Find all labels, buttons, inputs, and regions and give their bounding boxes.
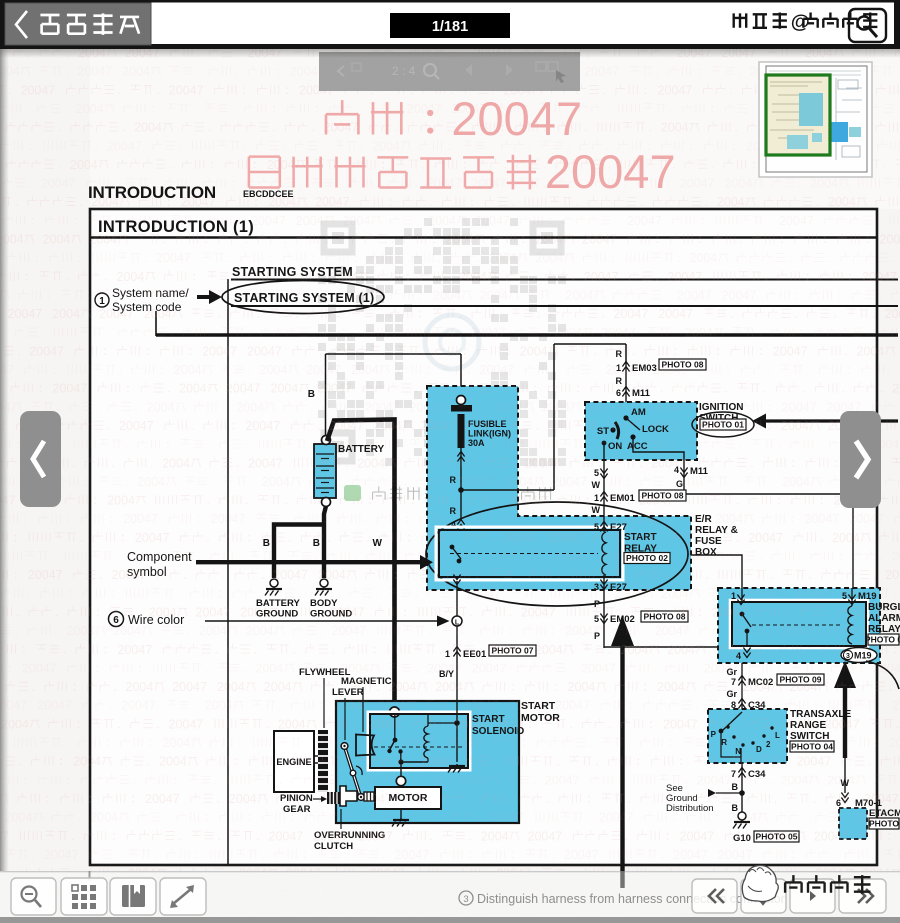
svg-text:2004: 2004 xyxy=(657,680,685,694)
svg-text:20047: 20047 xyxy=(805,512,840,526)
svg-text:2004: 2004 xyxy=(163,736,191,750)
svg-text:20047: 20047 xyxy=(564,848,599,862)
svg-text:20047: 20047 xyxy=(248,456,283,470)
svg-text:2004: 2004 xyxy=(542,400,570,414)
svg-text:20047: 20047 xyxy=(680,177,715,191)
svg-text:2004: 2004 xyxy=(767,829,795,843)
svg-text:20047: 20047 xyxy=(367,717,402,731)
svg-text:MAGNETIC: MAGNETIC xyxy=(341,676,392,687)
svg-text:2004: 2004 xyxy=(873,661,900,675)
svg-text:W: W xyxy=(373,538,383,549)
svg-text:G10: G10 xyxy=(733,833,751,844)
svg-text:2004: 2004 xyxy=(606,363,634,377)
svg-text:20047: 20047 xyxy=(22,661,57,675)
svg-text:20047: 20047 xyxy=(78,65,113,79)
svg-text:2004: 2004 xyxy=(43,233,71,247)
svg-text:2004: 2004 xyxy=(205,699,233,713)
svg-text:20047: 20047 xyxy=(269,829,304,843)
svg-text:LEVER: LEVER xyxy=(332,687,364,698)
svg-text:N: N xyxy=(735,747,741,756)
svg-text:2004: 2004 xyxy=(236,400,264,414)
svg-text:20047: 20047 xyxy=(782,400,817,414)
svg-text:20047: 20047 xyxy=(545,773,580,787)
svg-text:2004: 2004 xyxy=(459,270,487,284)
svg-text:20047: 20047 xyxy=(451,92,582,145)
svg-text:2004: 2004 xyxy=(509,699,537,713)
svg-text:5: 5 xyxy=(594,614,599,624)
svg-text:2004: 2004 xyxy=(661,587,689,601)
svg-text:2004: 2004 xyxy=(264,680,292,694)
svg-text:20047: 20047 xyxy=(475,214,510,228)
svg-text:20047: 20047 xyxy=(123,512,158,526)
svg-text:20047: 20047 xyxy=(322,438,357,452)
svg-text:MOTOR: MOTOR xyxy=(521,712,560,724)
svg-text:2004: 2004 xyxy=(374,419,402,433)
svg-text:20047: 20047 xyxy=(346,288,381,302)
svg-text:20047: 20047 xyxy=(773,344,808,358)
svg-text:20047: 20047 xyxy=(330,606,365,620)
svg-text:P: P xyxy=(711,730,717,739)
svg-text:2004: 2004 xyxy=(159,755,187,769)
svg-text:2004: 2004 xyxy=(446,233,474,247)
svg-text:20047: 20047 xyxy=(525,456,560,470)
svg-text:20047: 20047 xyxy=(673,848,708,862)
svg-text:20047: 20047 xyxy=(315,195,350,209)
svg-text:B: B xyxy=(263,538,270,549)
svg-text:20047: 20047 xyxy=(663,717,698,731)
svg-text:1: 1 xyxy=(731,591,736,601)
svg-text:20047: 20047 xyxy=(599,811,634,825)
svg-text:2004: 2004 xyxy=(827,773,855,787)
svg-text:2004: 2004 xyxy=(495,400,523,414)
svg-text:2004: 2004 xyxy=(743,680,771,694)
svg-text:7: 7 xyxy=(731,677,736,687)
svg-text:2004: 2004 xyxy=(880,233,900,247)
svg-text:20047: 20047 xyxy=(407,102,442,116)
svg-text:2004: 2004 xyxy=(260,363,288,377)
svg-text:2004: 2004 xyxy=(520,344,548,358)
svg-text:W: W xyxy=(592,480,601,490)
svg-text:20047: 20047 xyxy=(41,177,76,191)
svg-text:20047: 20047 xyxy=(358,829,393,843)
svg-text:20047: 20047 xyxy=(472,661,507,675)
svg-text:20047: 20047 xyxy=(825,717,860,731)
svg-text:20047: 20047 xyxy=(181,195,216,209)
svg-text:2004: 2004 xyxy=(782,475,810,489)
svg-text:EM01: EM01 xyxy=(610,493,636,504)
svg-text:7: 7 xyxy=(731,769,736,779)
svg-text:2004: 2004 xyxy=(535,233,563,247)
svg-text:2004: 2004 xyxy=(651,456,679,470)
svg-text:20047: 20047 xyxy=(169,83,204,97)
svg-text:20047: 20047 xyxy=(655,624,690,638)
svg-text:20047: 20047 xyxy=(480,363,515,377)
svg-text:R: R xyxy=(450,475,457,485)
svg-text:B: B xyxy=(732,782,739,792)
svg-text:20047: 20047 xyxy=(365,400,400,414)
svg-text:2004: 2004 xyxy=(480,288,508,302)
svg-text:20047: 20047 xyxy=(333,699,368,713)
svg-text:20047: 20047 xyxy=(169,717,204,731)
svg-text:20047: 20047 xyxy=(490,811,525,825)
svg-text:20047: 20047 xyxy=(797,755,832,769)
svg-text:1: 1 xyxy=(99,296,105,307)
svg-text:START: START xyxy=(624,532,657,543)
svg-text:20047: 20047 xyxy=(555,550,590,564)
svg-text:G: G xyxy=(676,479,683,489)
svg-text:2004: 2004 xyxy=(690,251,718,265)
svg-text:2004: 2004 xyxy=(653,400,681,414)
svg-text:20047: 20047 xyxy=(528,829,563,843)
svg-text:2004: 2004 xyxy=(271,382,299,396)
svg-text:LINK(IGN): LINK(IGN) xyxy=(468,429,511,439)
svg-text:D: D xyxy=(756,745,762,754)
svg-text:20047: 20047 xyxy=(324,121,359,135)
svg-text:3: 3 xyxy=(846,653,850,660)
svg-text:20047: 20047 xyxy=(697,773,732,787)
svg-text:E27: E27 xyxy=(610,522,627,533)
svg-text:B: B xyxy=(308,389,315,400)
svg-text:2004: 2004 xyxy=(256,661,284,675)
svg-text:20047: 20047 xyxy=(306,363,341,377)
svg-text:20047: 20047 xyxy=(112,568,147,582)
svg-text:20047: 20047 xyxy=(29,344,64,358)
svg-text:20047: 20047 xyxy=(172,680,207,694)
svg-text:2004: 2004 xyxy=(137,475,165,489)
svg-text:2004: 2004 xyxy=(89,233,117,247)
svg-text:L: L xyxy=(455,620,460,627)
svg-text:20047: 20047 xyxy=(584,65,619,79)
svg-text:2004: 2004 xyxy=(278,717,306,731)
svg-text:2004: 2004 xyxy=(296,214,324,228)
svg-text:20047: 20047 xyxy=(464,699,499,713)
svg-text:20047: 20047 xyxy=(455,717,490,731)
svg-text:20047: 20047 xyxy=(466,587,501,601)
svg-text:2004: 2004 xyxy=(583,512,611,526)
svg-text:20047: 20047 xyxy=(642,438,677,452)
svg-text:2004: 2004 xyxy=(885,568,900,582)
svg-text:20047: 20047 xyxy=(21,83,56,97)
svg-text:3: 3 xyxy=(463,894,468,905)
svg-text:PHOTO 08: PHOTO 08 xyxy=(644,612,686,622)
svg-text:20047: 20047 xyxy=(712,606,747,620)
svg-text:2004: 2004 xyxy=(854,811,882,825)
svg-text:30A: 30A xyxy=(468,438,485,448)
svg-text:Component: Component xyxy=(127,550,192,564)
svg-text:2004: 2004 xyxy=(481,829,509,843)
svg-text:20047: 20047 xyxy=(135,531,170,545)
svg-text:20047: 20047 xyxy=(471,326,506,340)
svg-text:2004: 2004 xyxy=(147,400,175,414)
svg-text:20047: 20047 xyxy=(118,643,153,657)
svg-text:2004: 2004 xyxy=(76,102,104,116)
svg-text:ON: ON xyxy=(608,441,622,452)
svg-text:20047: 20047 xyxy=(226,382,261,396)
svg-text:1: 1 xyxy=(445,649,450,659)
svg-text:2004: 2004 xyxy=(318,568,346,582)
svg-text:20047: 20047 xyxy=(8,307,43,321)
svg-text:2004: 2004 xyxy=(885,307,900,321)
svg-text:20047: 20047 xyxy=(107,139,142,153)
svg-text:2004: 2004 xyxy=(262,475,290,489)
svg-text:20047: 20047 xyxy=(555,699,590,713)
svg-text:P: P xyxy=(594,631,600,641)
svg-text:20047: 20047 xyxy=(503,531,538,545)
svg-text:2004: 2004 xyxy=(113,624,141,638)
svg-text:SWITCH: SWITCH xyxy=(790,731,829,742)
svg-text:PINION: PINION xyxy=(280,793,313,804)
svg-text:20047: 20047 xyxy=(273,568,308,582)
svg-text:2004: 2004 xyxy=(433,288,461,302)
svg-text:Distinguish harness from harne: Distinguish harness from harness connect… xyxy=(477,892,785,906)
svg-text:2004: 2004 xyxy=(73,755,101,769)
svg-text:2004: 2004 xyxy=(240,606,268,620)
svg-text:5: 5 xyxy=(594,468,599,478)
svg-text:2004: 2004 xyxy=(715,512,743,526)
svg-text:2004: 2004 xyxy=(134,121,162,135)
svg-text:20047: 20047 xyxy=(639,494,674,508)
svg-text:@: @ xyxy=(791,11,810,33)
svg-text:20047: 20047 xyxy=(680,829,715,843)
svg-text:2004: 2004 xyxy=(489,251,517,265)
svg-text:2004: 2004 xyxy=(389,680,417,694)
svg-text:2004: 2004 xyxy=(428,214,456,228)
svg-text:1: 1 xyxy=(594,493,599,503)
svg-text:2004: 2004 xyxy=(447,736,475,750)
svg-text:6: 6 xyxy=(616,388,621,398)
svg-text:2004: 2004 xyxy=(729,811,757,825)
svg-text:2004: 2004 xyxy=(126,680,154,694)
svg-text:20047: 20047 xyxy=(814,829,849,843)
svg-text:20047: 20047 xyxy=(247,344,282,358)
svg-text:2004: 2004 xyxy=(91,195,119,209)
svg-text:R: R xyxy=(450,506,457,516)
svg-text:2004: 2004 xyxy=(747,587,775,601)
svg-text:M11: M11 xyxy=(690,466,709,477)
svg-text:2004: 2004 xyxy=(667,643,695,657)
svg-text:20047: 20047 xyxy=(44,848,79,862)
svg-text:2004: 2004 xyxy=(892,382,900,396)
svg-text:Distribution: Distribution xyxy=(666,803,714,814)
svg-text:20047: 20047 xyxy=(694,419,729,433)
svg-text:2004: 2004 xyxy=(832,531,860,545)
svg-text:20047: 20047 xyxy=(329,419,364,433)
svg-text:2004: 2004 xyxy=(506,475,534,489)
svg-text:PHOTO 04: PHOTO 04 xyxy=(791,742,833,752)
svg-text:2004: 2004 xyxy=(555,326,583,340)
svg-text:2004: 2004 xyxy=(70,158,98,172)
svg-text:ST: ST xyxy=(597,426,609,437)
svg-text:20047: 20047 xyxy=(211,512,246,526)
svg-text:20047: 20047 xyxy=(421,419,456,433)
svg-text:2004: 2004 xyxy=(459,773,487,787)
svg-text:2004: 2004 xyxy=(357,456,385,470)
svg-text:20047: 20047 xyxy=(658,307,693,321)
svg-text:2004: 2004 xyxy=(810,177,838,191)
svg-text:20047: 20047 xyxy=(521,606,556,620)
svg-text:2004: 2004 xyxy=(67,624,95,638)
svg-text:20047: 20047 xyxy=(119,419,154,433)
svg-text:20047: 20047 xyxy=(584,270,619,284)
svg-text:20047: 20047 xyxy=(677,288,712,302)
svg-text:2004: 2004 xyxy=(149,606,177,620)
svg-text:20047: 20047 xyxy=(722,288,757,302)
svg-text:20047: 20047 xyxy=(317,382,352,396)
svg-text:2004: 2004 xyxy=(510,494,538,508)
svg-text:2004: 2004 xyxy=(459,475,487,489)
svg-text:20047: 20047 xyxy=(121,699,156,713)
svg-text:2004: 2004 xyxy=(685,326,713,340)
svg-text:BURGLAR: BURGLAR xyxy=(868,602,900,613)
svg-text:L: L xyxy=(775,731,780,740)
svg-text:20047: 20047 xyxy=(892,550,900,564)
svg-text:20047: 20047 xyxy=(490,643,525,657)
svg-text:2004: 2004 xyxy=(144,307,172,321)
svg-text:20047: 20047 xyxy=(420,755,455,769)
svg-text:R: R xyxy=(616,376,623,386)
svg-text:System name/: System name/ xyxy=(112,286,189,300)
svg-text:PHOTO 02: PHOTO 02 xyxy=(626,553,668,563)
svg-text:20047: 20047 xyxy=(862,270,897,284)
svg-text:2004: 2004 xyxy=(790,680,818,694)
svg-text:2004: 2004 xyxy=(90,811,118,825)
svg-text:2004: 2004 xyxy=(122,65,150,79)
svg-text:AM: AM xyxy=(631,407,646,418)
svg-text:2004: 2004 xyxy=(410,400,438,414)
svg-text:2004: 2004 xyxy=(781,773,809,787)
svg-text:2004: 2004 xyxy=(828,195,856,209)
svg-text:R: R xyxy=(616,349,623,359)
svg-text:20047: 20047 xyxy=(748,531,783,545)
svg-text:2004: 2004 xyxy=(794,587,822,601)
svg-text:20047: 20047 xyxy=(581,661,616,675)
svg-text:2004: 2004 xyxy=(331,270,359,284)
svg-text:2004: 2004 xyxy=(536,251,564,265)
svg-text:20047: 20047 xyxy=(246,419,281,433)
svg-text:20047: 20047 xyxy=(601,326,636,340)
svg-text:20047: 20047 xyxy=(893,699,900,713)
svg-text:2004: 2004 xyxy=(535,643,563,657)
svg-text:2004: 2004 xyxy=(117,270,145,284)
svg-text:EE01: EE01 xyxy=(463,649,487,660)
svg-text:1/181: 1/181 xyxy=(432,19,468,35)
svg-text:2004: 2004 xyxy=(343,214,371,228)
svg-text:ALARM: ALARM xyxy=(868,613,900,624)
svg-text:2004: 2004 xyxy=(889,736,900,750)
svg-text:20047: 20047 xyxy=(402,736,437,750)
svg-text:2004: 2004 xyxy=(614,587,642,601)
svg-text:2004: 2004 xyxy=(621,643,649,657)
svg-text:20047: 20047 xyxy=(704,661,739,675)
svg-text:20047: 20047 xyxy=(145,792,180,806)
svg-text:2004: 2004 xyxy=(179,382,207,396)
svg-text:2004: 2004 xyxy=(229,792,257,806)
svg-text:2004: 2004 xyxy=(174,363,202,377)
svg-text:20047: 20047 xyxy=(582,233,617,247)
svg-text:20047: 20047 xyxy=(653,363,688,377)
svg-text:2004: 2004 xyxy=(857,344,885,358)
svg-text:2004: 2004 xyxy=(781,419,809,433)
svg-text:20047: 20047 xyxy=(196,606,231,620)
svg-text:2004: 2004 xyxy=(600,550,628,564)
svg-text:2004: 2004 xyxy=(372,139,400,153)
svg-text:20047: 20047 xyxy=(614,307,649,321)
svg-text:2004: 2004 xyxy=(268,195,296,209)
svg-text:2004: 2004 xyxy=(717,195,745,209)
svg-text:2004: 2004 xyxy=(162,456,190,470)
svg-text:20047: 20047 xyxy=(427,661,462,675)
svg-text:M19: M19 xyxy=(854,651,872,661)
svg-text:20047: 20047 xyxy=(548,531,583,545)
svg-text:20047: 20047 xyxy=(552,475,587,489)
svg-text:GEAR: GEAR xyxy=(283,804,311,815)
svg-text:20047: 20047 xyxy=(718,848,753,862)
svg-text:2004: 2004 xyxy=(661,121,689,135)
svg-text:20047: 20047 xyxy=(37,699,72,713)
svg-text:20047: 20047 xyxy=(99,307,134,321)
svg-text:20047: 20047 xyxy=(864,792,899,806)
svg-text:ENGINE: ENGINE xyxy=(276,757,311,767)
svg-text:2004: 2004 xyxy=(568,680,596,694)
svg-text:2004: 2004 xyxy=(199,624,227,638)
svg-text:2004: 2004 xyxy=(685,550,713,564)
svg-text:20047: 20047 xyxy=(668,270,703,284)
svg-text:20047: 20047 xyxy=(53,382,88,396)
svg-text:2004: 2004 xyxy=(566,288,594,302)
svg-text:2004: 2004 xyxy=(378,699,406,713)
svg-text:2 : 4: 2 : 4 xyxy=(392,64,416,78)
svg-text:20047: 20047 xyxy=(332,624,367,638)
svg-text:2004: 2004 xyxy=(565,624,593,638)
svg-text:2004: 2004 xyxy=(725,177,753,191)
svg-text:2004: 2004 xyxy=(217,680,245,694)
svg-text:20047: 20047 xyxy=(545,145,676,198)
svg-text:20047: 20047 xyxy=(28,568,63,582)
svg-text:20047: 20047 xyxy=(849,512,884,526)
svg-text:2004: 2004 xyxy=(781,624,809,638)
svg-text:6: 6 xyxy=(836,798,841,808)
svg-text:20047: 20047 xyxy=(357,792,392,806)
svg-text:2004: 2004 xyxy=(629,512,657,526)
svg-text:20047: 20047 xyxy=(202,344,237,358)
svg-text:2004: 2004 xyxy=(107,494,135,508)
svg-text:2004: 2004 xyxy=(246,624,274,638)
svg-text:2004: 2004 xyxy=(351,363,379,377)
svg-text:20047: 20047 xyxy=(627,214,662,228)
svg-text:3: 3 xyxy=(594,582,599,592)
svg-text:20047: 20047 xyxy=(658,83,693,97)
svg-text:2004: 2004 xyxy=(52,307,80,321)
svg-text:20047: 20047 xyxy=(313,829,348,843)
svg-text:20047: 20047 xyxy=(156,251,191,265)
svg-text:2004: 2004 xyxy=(435,680,463,694)
svg-text:PHOTO 0: PHOTO 0 xyxy=(865,635,900,645)
svg-text:R: R xyxy=(721,738,727,747)
svg-text:2004: 2004 xyxy=(341,661,369,675)
svg-text:20047: 20047 xyxy=(251,214,286,228)
svg-text:M11: M11 xyxy=(632,388,651,399)
svg-text:20047: 20047 xyxy=(779,214,814,228)
svg-text:20047: 20047 xyxy=(395,848,430,862)
